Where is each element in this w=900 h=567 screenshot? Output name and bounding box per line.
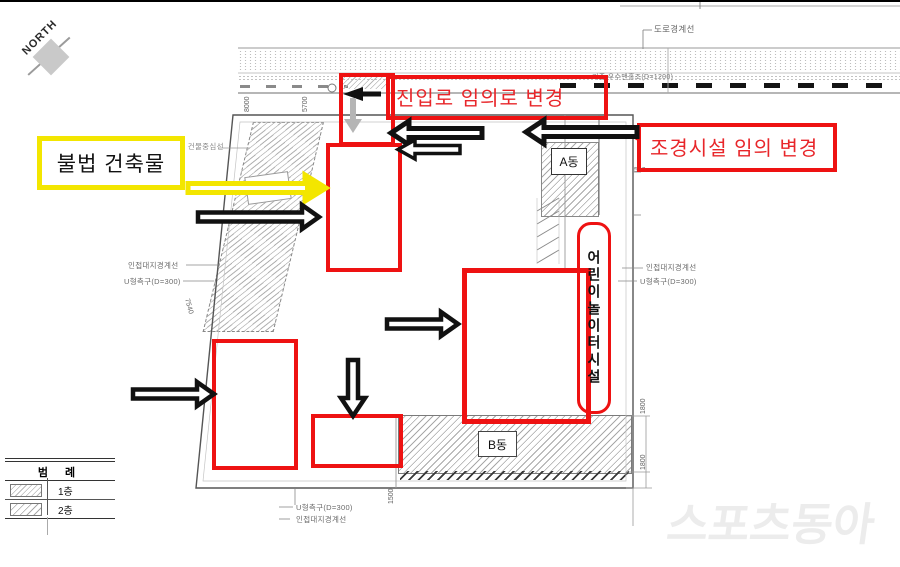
black-arrow-left-2-icon [398,140,460,159]
annotation-arrows [0,2,900,567]
black-arrow-right-1-icon [198,205,319,229]
black-arrow-left-1-icon [391,121,482,145]
black-arrow-right-3-icon [133,382,214,406]
yellow-arrow-head-icon [305,175,326,202]
black-arrow-right-2-icon [387,312,458,336]
black-arrow-down-icon [341,360,365,416]
black-arrow-left-3-icon [526,120,637,144]
site-plan-page: NORTH 도로경계선 기존 우수맨홀조(D=1200) 신축 건물중심선 인접… [0,0,900,567]
